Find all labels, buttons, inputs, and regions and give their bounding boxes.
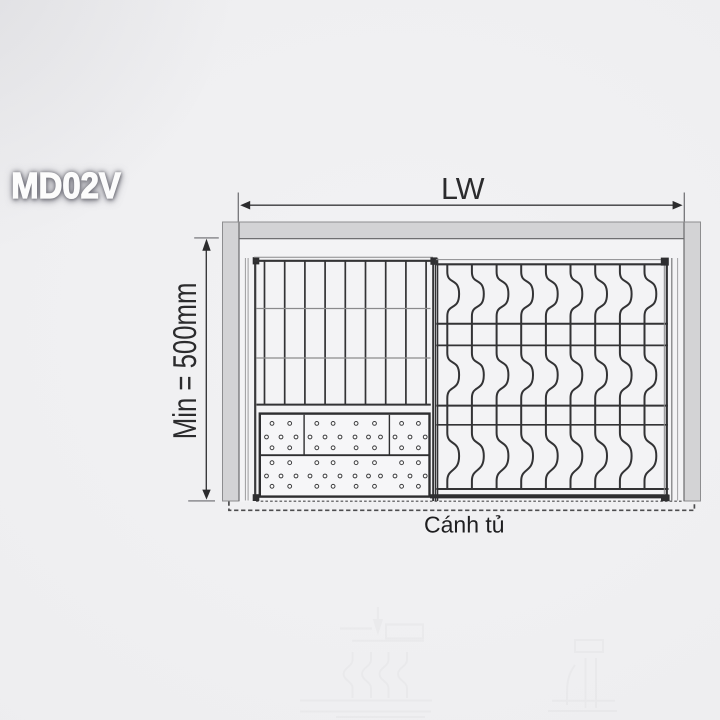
svg-text:MD02V: MD02V [11, 165, 121, 206]
svg-text:Min = 500mm: Min = 500mm [166, 283, 203, 440]
svg-text:LW: LW [441, 172, 485, 206]
svg-text:Cánh tủ: Cánh tủ [424, 511, 505, 537]
